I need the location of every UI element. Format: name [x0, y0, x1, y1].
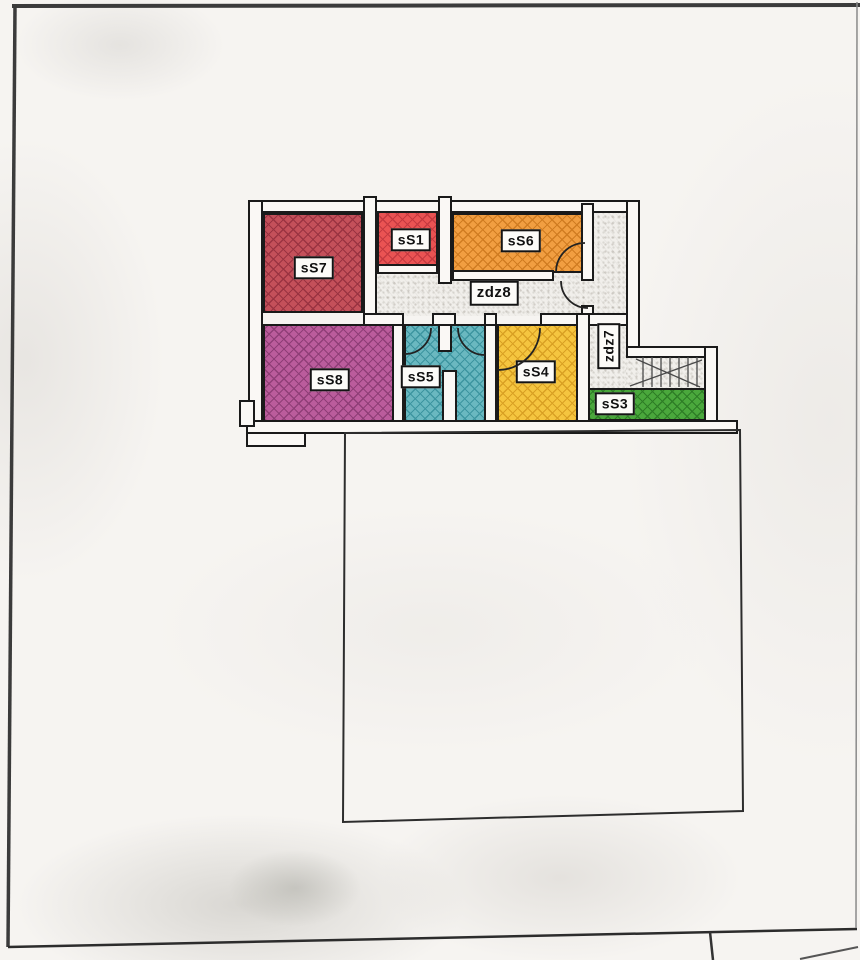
corridor-label-zdz8: zdz8	[470, 281, 519, 306]
room-label-ss7: sS7	[294, 256, 334, 279]
wall	[363, 196, 377, 320]
wall	[246, 420, 738, 434]
bottom-tick-mark	[710, 932, 713, 960]
wall-recess	[239, 400, 255, 427]
room-label-ss6: sS6	[501, 229, 541, 252]
page-frame-bottom	[8, 929, 857, 947]
page-frame-top	[12, 5, 860, 6]
wall	[377, 264, 438, 274]
room-label-ss4: sS4	[516, 360, 556, 383]
corridor-label-zdz7: zdz7	[597, 323, 620, 369]
scanned-page: sS7 sS1 sS6 sS8 sS5 sS4 sS3 zdz8 zdz7	[0, 0, 860, 960]
bottom-corner-mark	[800, 947, 858, 959]
wall	[576, 313, 590, 422]
room-label-ss8: sS8	[310, 368, 350, 391]
wall	[248, 200, 263, 432]
lower-floor-outline	[343, 430, 743, 822]
room-label-ss5: sS5	[401, 365, 441, 388]
wall	[704, 346, 718, 426]
page-frame-left	[8, 6, 15, 947]
linework-overlay	[0, 0, 860, 960]
room-label-ss3: sS3	[595, 392, 635, 415]
wall	[246, 432, 306, 447]
wall-stub	[438, 324, 452, 352]
wall-pillar	[438, 196, 452, 284]
wall	[626, 200, 640, 350]
wall-stub	[442, 370, 457, 422]
wall	[484, 324, 497, 422]
room-label-ss1: sS1	[391, 228, 431, 251]
page-frame-right	[856, 2, 857, 928]
wall	[452, 270, 554, 281]
wall	[581, 203, 594, 281]
